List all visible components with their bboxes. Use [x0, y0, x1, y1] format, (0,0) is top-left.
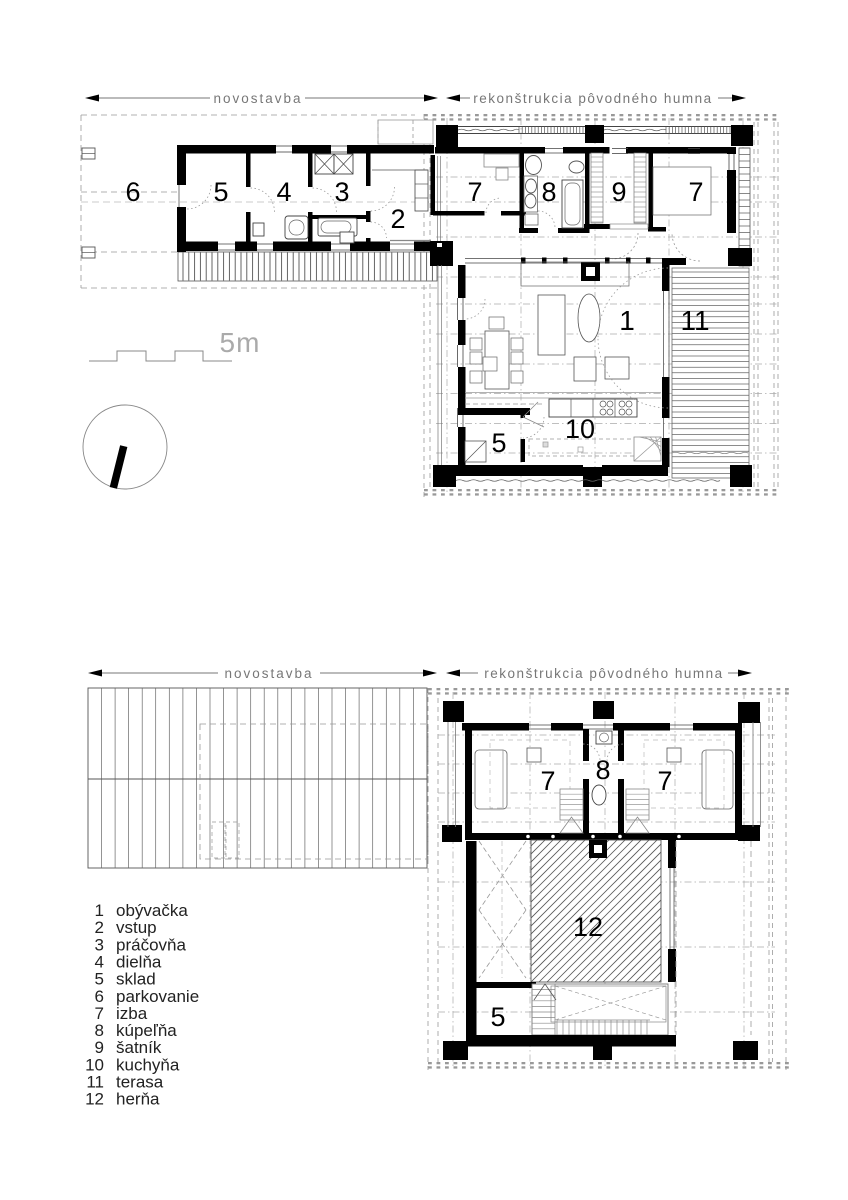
- svg-text:8: 8: [95, 1021, 104, 1040]
- svg-text:4: 4: [276, 177, 291, 207]
- svg-text:herňa: herňa: [116, 1090, 160, 1109]
- svg-text:izba: izba: [116, 1004, 148, 1023]
- svg-text:terasa: terasa: [116, 1073, 164, 1092]
- svg-text:šatník: šatník: [116, 1038, 162, 1057]
- svg-text:11: 11: [680, 305, 709, 336]
- svg-text:novostavba: novostavba: [213, 91, 302, 106]
- svg-text:2: 2: [95, 918, 104, 937]
- svg-text:9: 9: [95, 1038, 104, 1057]
- svg-text:sklad: sklad: [116, 970, 156, 989]
- svg-text:10: 10: [85, 1055, 104, 1074]
- svg-text:7: 7: [540, 766, 555, 796]
- svg-text:3: 3: [334, 177, 349, 207]
- svg-text:5: 5: [95, 970, 104, 989]
- svg-text:5: 5: [490, 1002, 505, 1032]
- svg-text:1: 1: [619, 305, 635, 336]
- svg-text:7: 7: [688, 177, 703, 207]
- svg-text:parkovanie: parkovanie: [116, 987, 199, 1006]
- svg-text:1: 1: [95, 901, 104, 920]
- svg-text:dielňa: dielňa: [116, 952, 162, 971]
- svg-text:2: 2: [390, 204, 405, 234]
- svg-text:6: 6: [125, 177, 140, 207]
- svg-text:8: 8: [541, 177, 556, 207]
- svg-text:7: 7: [95, 1004, 104, 1023]
- svg-text:6: 6: [95, 987, 104, 1006]
- svg-text:3: 3: [95, 935, 104, 954]
- svg-text:4: 4: [95, 952, 104, 971]
- svg-text:práčovňa: práčovňa: [116, 935, 186, 954]
- svg-text:5: 5: [491, 428, 506, 458]
- svg-text:novostavba: novostavba: [224, 666, 313, 681]
- svg-text:8: 8: [595, 755, 610, 785]
- svg-text:11: 11: [86, 1073, 104, 1092]
- svg-text:7: 7: [467, 177, 482, 207]
- svg-text:5m: 5m: [220, 327, 261, 358]
- svg-text:kuchyňa: kuchyňa: [116, 1055, 180, 1074]
- svg-text:9: 9: [611, 177, 626, 207]
- svg-text:12: 12: [85, 1090, 104, 1109]
- svg-text:10: 10: [565, 414, 595, 444]
- svg-text:7: 7: [657, 766, 672, 796]
- svg-text:rekonštrukcia pôvodného humn: rekonštrukcia pôvodného humna: [473, 91, 712, 106]
- svg-text:rekonštrukcia pôvodného humn: rekonštrukcia pôvodného humna: [484, 666, 723, 681]
- svg-text:kúpeľňa: kúpeľňa: [116, 1021, 177, 1040]
- svg-text:5: 5: [213, 177, 228, 207]
- svg-text:12: 12: [573, 912, 603, 942]
- svg-text:vstup: vstup: [116, 918, 157, 937]
- svg-text:obývačka: obývačka: [116, 901, 188, 920]
